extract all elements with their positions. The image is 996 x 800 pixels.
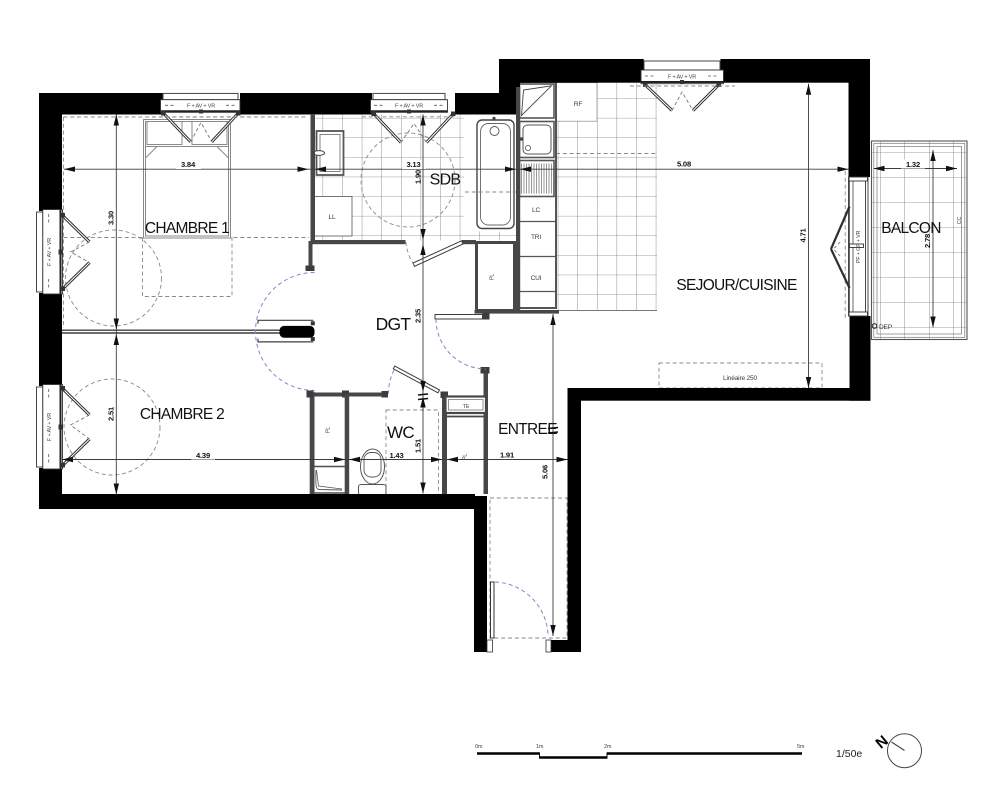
svg-text:PL: PL [326, 427, 332, 433]
svg-text:PF + GF + VR: PF + GF + VR [856, 231, 862, 264]
svg-text:3.30: 3.30 [107, 211, 116, 225]
svg-text:2.35: 2.35 [414, 308, 423, 323]
svg-text:1.91: 1.91 [500, 450, 515, 459]
svg-text:WC: WC [387, 423, 414, 442]
svg-text:DEP: DEP [879, 324, 893, 331]
svg-text:1/50e: 1/50e [836, 748, 862, 760]
svg-text:F + AV + VR: F + AV + VR [668, 75, 696, 81]
svg-text:3.84: 3.84 [181, 160, 196, 169]
svg-text:1.43: 1.43 [390, 451, 404, 460]
svg-text:F + AV + VR: F + AV + VR [47, 413, 53, 441]
svg-text:Linéaire 250: Linéaire 250 [723, 375, 757, 382]
svg-text:LL: LL [329, 214, 336, 221]
svg-text:1.51: 1.51 [414, 438, 423, 453]
svg-text:TE: TE [463, 404, 470, 410]
svg-text:1m: 1m [536, 744, 544, 750]
svg-text:4.71: 4.71 [799, 228, 808, 243]
svg-text:1.32: 1.32 [906, 160, 920, 169]
svg-text:3.13: 3.13 [407, 160, 421, 169]
svg-text:ENTREE: ENTREE [498, 421, 557, 438]
svg-text:F + AV + VR: F + AV + VR [47, 238, 53, 266]
svg-text:F + AV + VR: F + AV + VR [187, 104, 215, 110]
svg-text:N: N [873, 732, 892, 752]
svg-text:BALCON: BALCON [881, 220, 941, 237]
svg-text:F + AV + VR: F + AV + VR [395, 104, 423, 110]
svg-text:RF: RF [574, 101, 583, 108]
svg-text:5.06: 5.06 [541, 465, 550, 479]
svg-text:5.08: 5.08 [677, 160, 691, 169]
svg-text:LC: LC [532, 207, 540, 214]
svg-text:4.39: 4.39 [196, 451, 210, 460]
svg-text:SEJOUR/CUISINE: SEJOUR/CUISINE [676, 277, 797, 294]
svg-text:CC: CC [957, 217, 963, 225]
svg-text:CHAMBRE 1: CHAMBRE 1 [145, 220, 229, 237]
svg-text:TRI: TRI [531, 234, 541, 241]
svg-text:DGT: DGT [376, 314, 412, 334]
svg-text:SDB: SDB [430, 172, 461, 189]
svg-text:2m: 2m [604, 744, 612, 750]
svg-text:1.90: 1.90 [414, 170, 423, 184]
svg-text:CUI: CUI [531, 275, 542, 282]
svg-text:5m: 5m [797, 744, 805, 750]
svg-text:PL: PL [490, 274, 496, 280]
svg-text:2.51: 2.51 [107, 406, 116, 421]
svg-text:CHAMBRE 2: CHAMBRE 2 [140, 406, 224, 423]
svg-text:0m: 0m [475, 744, 483, 750]
